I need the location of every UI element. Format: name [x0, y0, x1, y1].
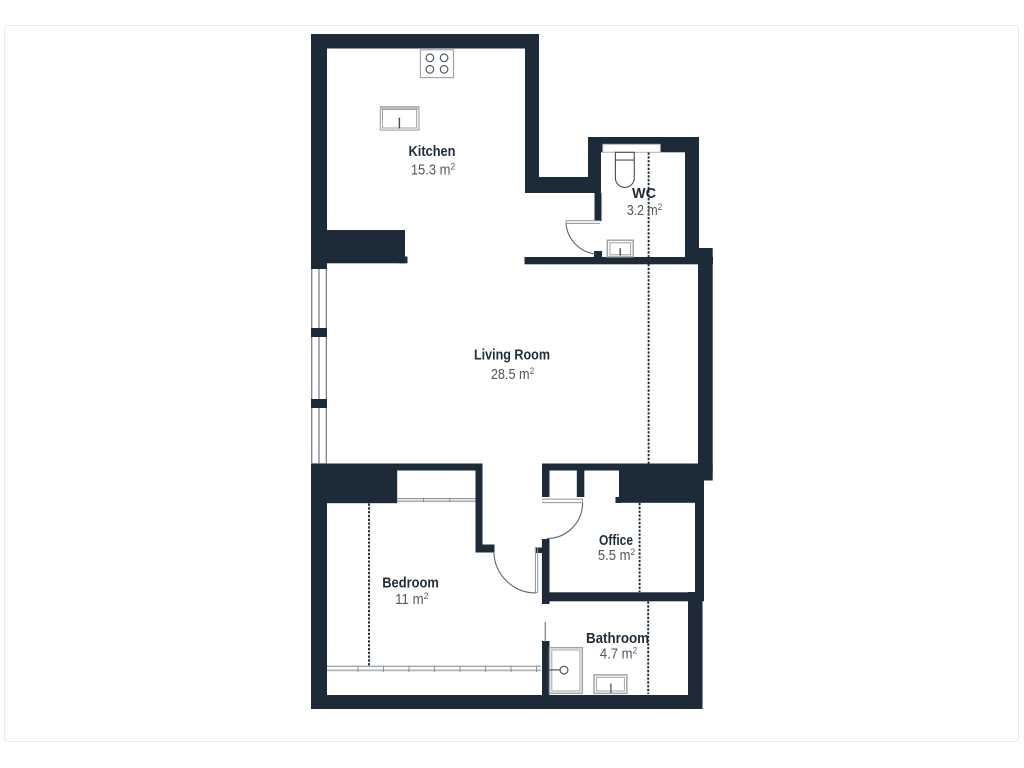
svg-text:Living Room: Living Room: [474, 345, 550, 362]
svg-text:3.2 m2: 3.2 m2: [627, 201, 662, 218]
svg-text:WC: WC: [632, 185, 656, 201]
svg-text:Kitchen: Kitchen: [409, 142, 456, 159]
svg-text:11 m2: 11 m2: [395, 590, 428, 607]
svg-text:4.7 m2: 4.7 m2: [600, 645, 637, 662]
svg-text:5.5 m2: 5.5 m2: [598, 546, 635, 563]
svg-text:28.5 m2: 28.5 m2: [491, 365, 534, 382]
svg-text:15.3 m2: 15.3 m2: [411, 161, 455, 178]
svg-text:Bedroom: Bedroom: [382, 573, 439, 590]
